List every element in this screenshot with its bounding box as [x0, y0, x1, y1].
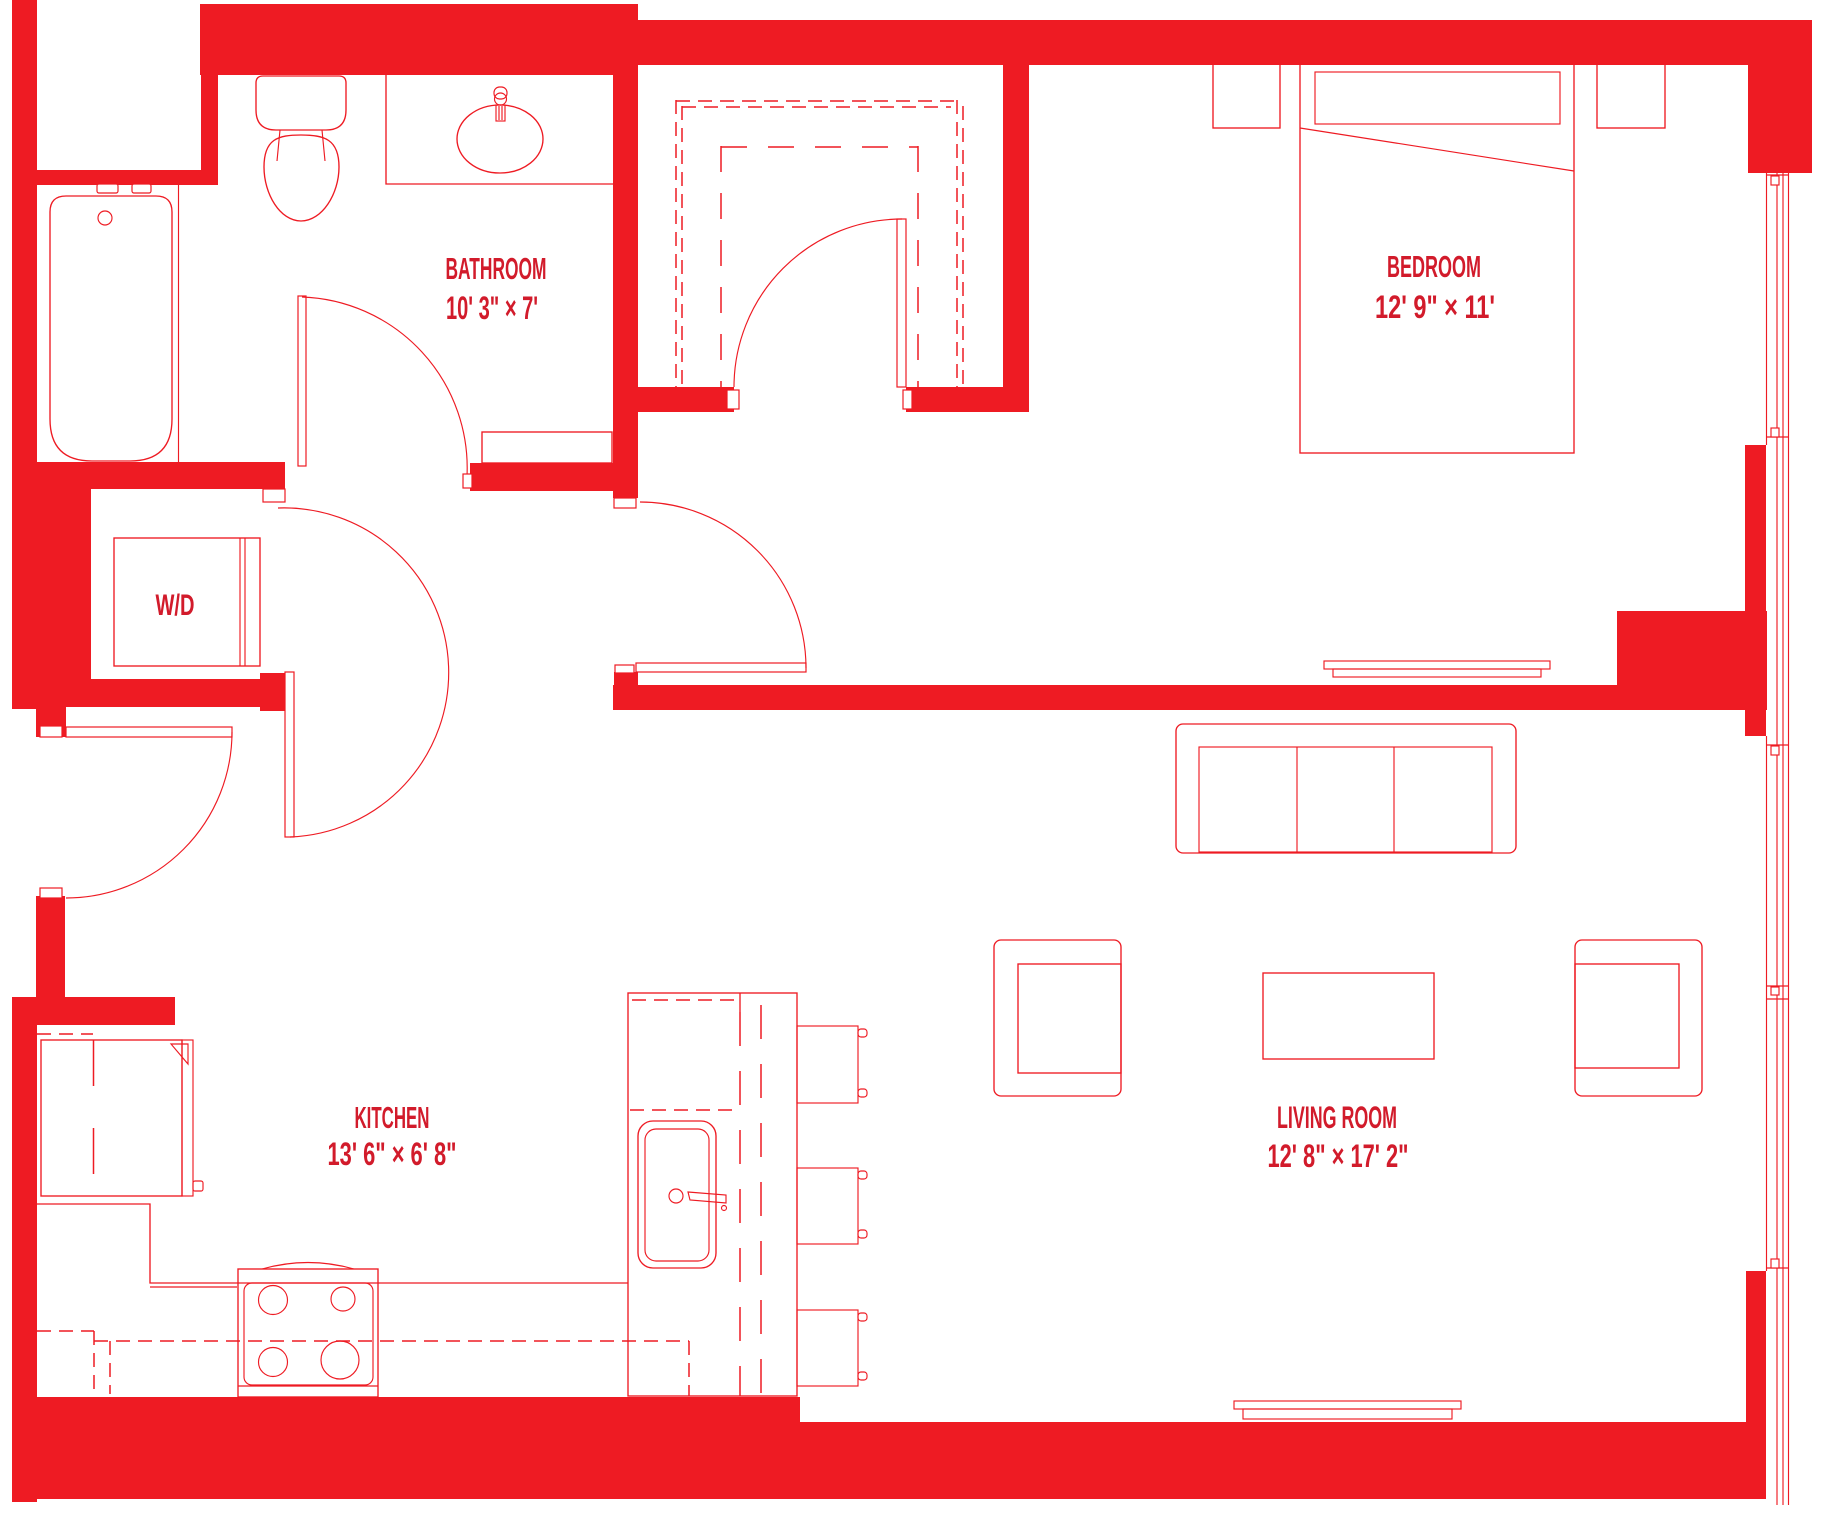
svg-text:12' 8" × 17' 2": 12' 8" × 17' 2" [1268, 1138, 1409, 1174]
svg-text:W/D: W/D [156, 589, 195, 622]
svg-text:13' 6" × 6' 8": 13' 6" × 6' 8" [328, 1136, 457, 1172]
svg-text:BATHROOM: BATHROOM [446, 251, 547, 286]
svg-text:KITCHEN: KITCHEN [355, 1100, 430, 1135]
svg-text:10' 3" × 7': 10' 3" × 7' [446, 290, 538, 326]
svg-text:LIVING ROOM: LIVING ROOM [1277, 1099, 1397, 1135]
svg-text:12' 9" × 11': 12' 9" × 11' [1375, 289, 1495, 325]
svg-text:BEDROOM: BEDROOM [1387, 249, 1481, 284]
